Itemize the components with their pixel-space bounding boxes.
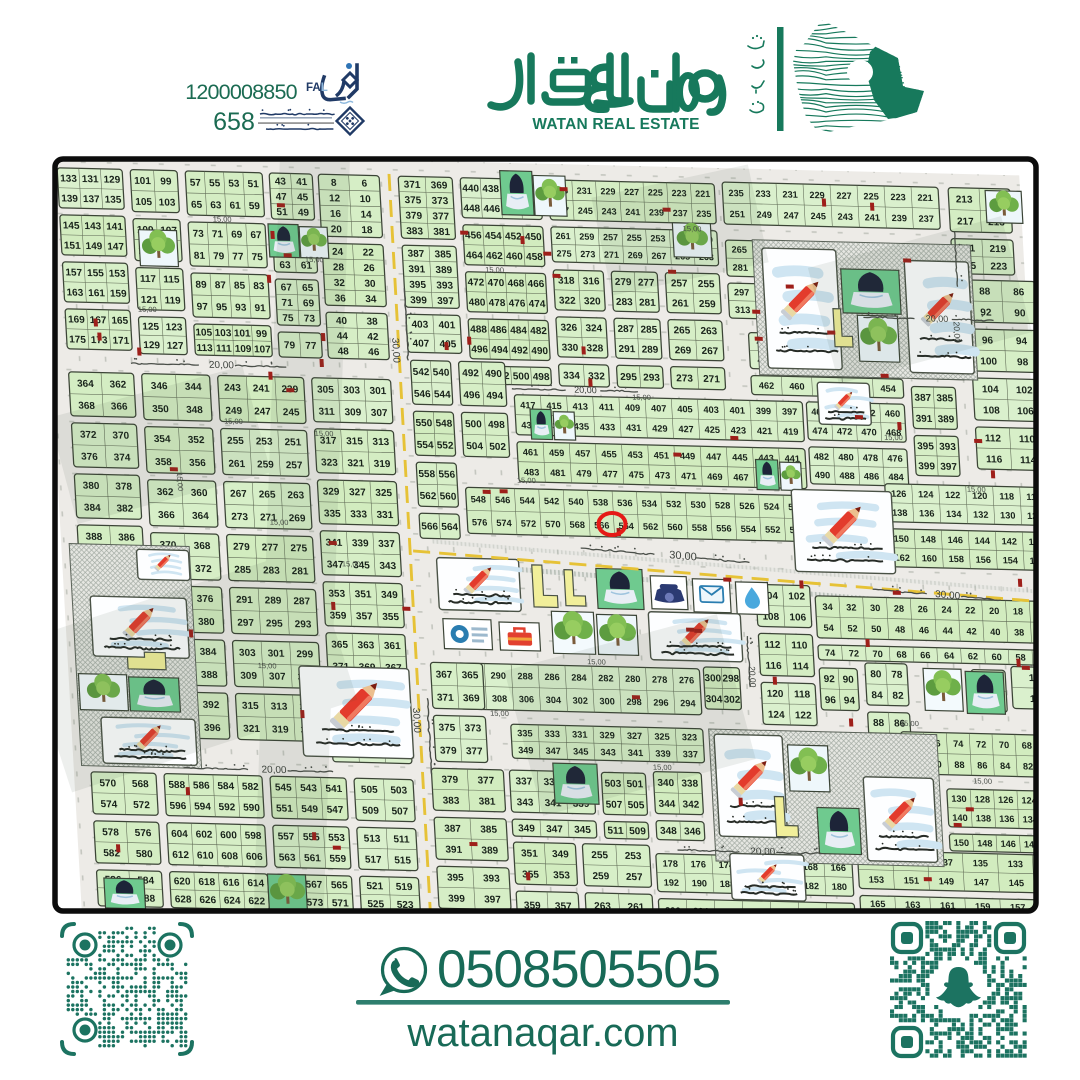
svg-text:91: 91 (254, 303, 266, 314)
svg-text:114: 114 (792, 661, 809, 672)
svg-text:381: 381 (433, 227, 451, 238)
svg-text:421: 421 (757, 426, 773, 436)
svg-text:337: 337 (515, 776, 533, 787)
svg-text:338: 338 (681, 778, 699, 789)
svg-text:15,00: 15,00 (213, 215, 232, 224)
svg-text:163: 163 (66, 287, 84, 298)
svg-text:50: 50 (871, 624, 882, 634)
svg-text:158: 158 (948, 554, 964, 564)
svg-text:139: 139 (61, 193, 79, 204)
svg-text:101: 101 (234, 328, 252, 339)
svg-text:368: 368 (193, 541, 211, 552)
svg-text:231: 231 (782, 189, 798, 199)
svg-text:55: 55 (209, 178, 221, 189)
svg-text:77: 77 (232, 252, 244, 263)
svg-text:548: 548 (470, 494, 486, 504)
svg-text:568: 568 (132, 779, 150, 790)
svg-text:120: 120 (767, 689, 785, 700)
svg-text:324: 324 (585, 323, 603, 334)
svg-text:308: 308 (492, 694, 508, 704)
svg-text:610: 610 (197, 850, 215, 861)
svg-text:30,00: 30,00 (669, 549, 697, 563)
svg-text:372: 372 (195, 564, 213, 575)
svg-text:38: 38 (1014, 627, 1025, 637)
svg-text:88: 88 (873, 718, 885, 729)
svg-text:247: 247 (254, 406, 272, 417)
svg-text:476: 476 (887, 453, 903, 463)
svg-text:481: 481 (550, 468, 566, 478)
svg-text:307: 307 (371, 408, 389, 419)
svg-text:119: 119 (164, 295, 181, 306)
svg-text:136: 136 (999, 814, 1015, 824)
svg-text:544: 544 (519, 495, 536, 505)
svg-text:349: 349 (518, 823, 536, 834)
svg-text:500: 500 (513, 371, 531, 382)
svg-text:132: 132 (973, 510, 989, 520)
svg-text:620: 620 (174, 876, 192, 887)
svg-text:480: 480 (838, 452, 854, 462)
svg-text:313: 313 (735, 305, 751, 315)
svg-text:101: 101 (134, 176, 152, 187)
svg-text:552: 552 (437, 440, 455, 451)
svg-text:30: 30 (870, 603, 881, 613)
svg-text:574: 574 (100, 799, 118, 810)
svg-text:375: 375 (404, 195, 422, 206)
svg-text:536: 536 (617, 498, 633, 508)
svg-text:79: 79 (213, 251, 225, 262)
svg-text:471: 471 (681, 471, 697, 481)
svg-text:559: 559 (329, 854, 347, 865)
svg-text:169: 169 (68, 314, 86, 325)
svg-text:245: 245 (810, 211, 826, 221)
svg-text:397: 397 (940, 462, 958, 473)
svg-text:477: 477 (602, 469, 618, 479)
svg-text:84: 84 (1000, 761, 1012, 771)
svg-text:460: 460 (885, 409, 901, 419)
svg-text:572: 572 (133, 800, 151, 811)
svg-text:578: 578 (102, 827, 120, 838)
svg-text:150: 150 (953, 838, 969, 848)
svg-text:484: 484 (888, 472, 905, 482)
svg-text:552: 552 (765, 524, 781, 534)
svg-text:389: 389 (435, 265, 453, 276)
svg-text:425: 425 (704, 425, 720, 435)
svg-text:290: 290 (490, 671, 506, 681)
svg-text:145: 145 (1008, 878, 1024, 888)
svg-text:534: 534 (641, 498, 658, 508)
svg-text:68: 68 (896, 650, 907, 660)
svg-text:99: 99 (256, 329, 268, 340)
svg-text:241: 241 (253, 383, 271, 394)
svg-text:576: 576 (134, 828, 152, 839)
svg-text:156: 156 (975, 555, 991, 565)
svg-text:386: 386 (118, 532, 136, 543)
svg-text:486: 486 (490, 325, 508, 336)
svg-text:365: 365 (461, 670, 479, 681)
svg-text:279: 279 (233, 542, 251, 553)
svg-text:438: 438 (482, 184, 500, 195)
svg-text:46: 46 (919, 625, 930, 635)
svg-text:431: 431 (626, 423, 642, 433)
svg-text:554: 554 (740, 524, 757, 534)
svg-text:479: 479 (576, 468, 592, 478)
svg-text:526: 526 (739, 501, 755, 511)
svg-text:255: 255 (591, 850, 609, 861)
svg-text:397: 397 (437, 296, 455, 307)
svg-text:131: 131 (82, 174, 100, 185)
svg-text:419: 419 (783, 427, 799, 437)
svg-text:103: 103 (214, 328, 232, 339)
svg-text:64: 64 (944, 651, 956, 661)
svg-text:500: 500 (465, 419, 483, 430)
svg-text:472: 472 (467, 277, 485, 288)
svg-text:80: 80 (870, 669, 882, 680)
svg-text:295: 295 (620, 372, 638, 383)
svg-text:457: 457 (575, 448, 591, 458)
svg-text:586: 586 (193, 780, 211, 791)
svg-text:470: 470 (487, 278, 505, 289)
svg-text:375: 375 (438, 722, 456, 733)
svg-text:267: 267 (701, 346, 719, 357)
svg-text:385: 385 (480, 824, 498, 835)
svg-text:176: 176 (690, 859, 706, 869)
svg-text:265: 265 (673, 325, 691, 336)
svg-text:554: 554 (417, 440, 435, 451)
svg-text:320: 320 (584, 296, 602, 307)
svg-text:131: 131 (1042, 860, 1058, 870)
svg-text:15,00: 15,00 (138, 305, 157, 314)
svg-text:61: 61 (229, 201, 241, 212)
svg-text:141: 141 (106, 222, 124, 233)
svg-text:190: 190 (691, 878, 707, 888)
svg-text:480: 480 (468, 297, 486, 308)
svg-text:147: 147 (107, 242, 125, 253)
svg-text:371: 371 (437, 692, 455, 703)
svg-text:608: 608 (221, 851, 239, 862)
svg-text:454: 454 (485, 231, 503, 242)
svg-text:285: 285 (640, 324, 658, 335)
svg-text:547: 547 (326, 805, 344, 816)
svg-text:142: 142 (1001, 536, 1017, 546)
svg-text:127: 127 (167, 341, 185, 352)
svg-text:462: 462 (486, 251, 504, 262)
svg-text:440: 440 (462, 183, 480, 194)
svg-text:237: 237 (918, 214, 934, 224)
svg-text:582: 582 (242, 782, 260, 793)
svg-text:180: 180 (831, 882, 847, 892)
svg-text:600: 600 (220, 830, 238, 841)
svg-text:57: 57 (190, 178, 202, 189)
svg-text:309: 309 (344, 407, 362, 418)
svg-text:56: 56 (1039, 653, 1050, 663)
svg-text:562: 562 (419, 491, 437, 502)
svg-text:343: 343 (379, 561, 397, 572)
svg-text:70: 70 (999, 740, 1010, 750)
svg-text:546: 546 (414, 389, 432, 400)
svg-text:34: 34 (365, 294, 377, 305)
svg-text:505: 505 (361, 784, 379, 795)
svg-text:106: 106 (1017, 406, 1035, 417)
svg-text:122: 122 (795, 710, 813, 721)
svg-text:473: 473 (655, 470, 671, 480)
svg-text:146: 146 (1000, 839, 1016, 849)
svg-text:393: 393 (939, 442, 957, 453)
svg-text:225: 225 (863, 191, 879, 201)
svg-text:72: 72 (849, 648, 860, 658)
svg-text:383: 383 (406, 226, 424, 237)
svg-text:445: 445 (732, 452, 748, 462)
svg-text:351: 351 (354, 589, 372, 600)
svg-text:72: 72 (976, 739, 987, 749)
svg-text:496: 496 (463, 390, 481, 401)
svg-text:149: 149 (938, 876, 954, 886)
svg-text:448: 448 (463, 203, 481, 214)
svg-text:371: 371 (403, 180, 421, 191)
svg-text:462: 462 (759, 381, 775, 391)
svg-text:80: 80 (1046, 762, 1057, 772)
svg-text:98: 98 (1017, 357, 1029, 368)
svg-text:287: 287 (617, 324, 635, 335)
svg-text:353: 353 (553, 870, 571, 881)
svg-text:74: 74 (825, 648, 837, 658)
svg-text:38: 38 (366, 316, 378, 327)
svg-text:407: 407 (651, 403, 667, 413)
svg-text:492: 492 (511, 345, 529, 356)
svg-text:387: 387 (444, 823, 462, 834)
svg-text:469: 469 (707, 472, 723, 482)
svg-text:75: 75 (251, 252, 263, 263)
svg-text:289: 289 (641, 344, 659, 355)
svg-text:558: 558 (692, 523, 708, 533)
svg-text:395: 395 (409, 280, 427, 291)
svg-text:472: 472 (837, 426, 853, 436)
svg-text:502: 502 (489, 442, 507, 453)
svg-text:129: 129 (143, 340, 161, 351)
svg-text:151: 151 (64, 240, 82, 251)
svg-text:171: 171 (112, 336, 130, 347)
svg-text:112: 112 (764, 640, 781, 651)
svg-text:20,00: 20,00 (750, 846, 776, 858)
svg-text:594: 594 (194, 801, 212, 812)
svg-text:293: 293 (643, 372, 661, 383)
svg-text:273: 273 (580, 249, 596, 259)
svg-text:482: 482 (530, 326, 548, 337)
svg-text:553: 553 (328, 833, 346, 844)
svg-text:321: 321 (347, 458, 365, 469)
svg-text:133: 133 (60, 173, 78, 184)
svg-text:53: 53 (228, 179, 240, 190)
svg-text:330: 330 (561, 343, 579, 354)
svg-text:612: 612 (172, 850, 190, 861)
svg-text:221: 221 (917, 193, 933, 203)
svg-text:135: 135 (104, 195, 122, 206)
svg-text:452: 452 (505, 231, 523, 242)
svg-text:291: 291 (618, 344, 636, 355)
svg-text:528: 528 (715, 500, 731, 510)
svg-text:143: 143 (84, 221, 102, 232)
svg-text:385: 385 (434, 249, 452, 260)
svg-text:70: 70 (872, 649, 883, 659)
svg-text:334: 334 (563, 371, 581, 382)
svg-text:474: 474 (528, 299, 546, 310)
svg-text:399: 399 (410, 295, 428, 306)
svg-text:178: 178 (662, 858, 678, 868)
svg-text:391: 391 (408, 264, 426, 275)
svg-text:484: 484 (510, 325, 528, 336)
svg-text:505: 505 (627, 800, 645, 811)
svg-text:313: 313 (372, 437, 390, 448)
svg-text:389: 389 (937, 414, 955, 425)
svg-text:144: 144 (974, 536, 991, 546)
svg-text:494: 494 (491, 345, 509, 356)
svg-text:68: 68 (1021, 740, 1032, 750)
svg-text:243: 243 (837, 212, 853, 222)
svg-text:145: 145 (63, 220, 81, 231)
svg-text:51: 51 (247, 179, 259, 190)
svg-text:273: 273 (676, 373, 694, 384)
svg-text:331: 331 (376, 510, 394, 521)
svg-text:474: 474 (812, 426, 829, 436)
svg-text:466: 466 (527, 279, 545, 290)
svg-text:257: 257 (626, 872, 644, 883)
svg-text:69: 69 (231, 230, 243, 241)
svg-text:564: 564 (441, 522, 459, 533)
svg-text:393: 393 (436, 280, 454, 291)
svg-text:138: 138 (975, 813, 991, 823)
svg-text:446: 446 (483, 204, 501, 215)
svg-text:509: 509 (362, 805, 380, 816)
svg-text:319: 319 (373, 459, 391, 470)
svg-text:364: 364 (192, 511, 210, 522)
svg-text:387: 387 (407, 249, 425, 260)
svg-text:301: 301 (369, 386, 387, 397)
svg-text:113: 113 (196, 343, 213, 354)
svg-text:15,00: 15,00 (967, 485, 986, 494)
svg-text:513: 513 (363, 833, 381, 844)
svg-text:328: 328 (586, 343, 604, 354)
svg-text:450: 450 (525, 232, 543, 243)
svg-text:167: 167 (89, 315, 107, 326)
svg-text:490: 490 (485, 369, 503, 380)
svg-text:475: 475 (628, 470, 644, 480)
svg-text:626: 626 (199, 895, 217, 906)
svg-text:588: 588 (168, 780, 186, 791)
svg-text:118: 118 (999, 491, 1014, 501)
svg-text:26: 26 (363, 263, 375, 274)
svg-text:26: 26 (917, 604, 928, 614)
svg-text:297: 297 (734, 287, 750, 297)
svg-text:540: 540 (432, 367, 450, 378)
svg-text:30: 30 (364, 279, 376, 290)
svg-text:401: 401 (729, 405, 745, 415)
svg-text:231: 231 (576, 186, 592, 196)
svg-text:255: 255 (698, 279, 716, 290)
svg-text:405: 405 (677, 404, 693, 414)
svg-text:73: 73 (192, 229, 204, 240)
svg-text:524: 524 (764, 501, 781, 511)
svg-text:146: 146 (947, 535, 963, 545)
svg-text:393: 393 (483, 873, 501, 884)
svg-text:385: 385 (936, 393, 954, 404)
svg-text:15,00: 15,00 (632, 393, 651, 402)
svg-text:159: 159 (110, 289, 128, 300)
svg-text:42: 42 (966, 626, 977, 636)
svg-text:15,00: 15,00 (485, 265, 504, 274)
svg-text:81: 81 (194, 251, 206, 262)
svg-text:78: 78 (891, 670, 903, 681)
svg-text:423: 423 (730, 425, 746, 435)
svg-text:15,00: 15,00 (517, 476, 536, 485)
svg-text:517: 517 (365, 854, 383, 865)
svg-text:117: 117 (140, 274, 157, 285)
svg-text:84: 84 (871, 690, 883, 701)
svg-text:377: 377 (477, 775, 495, 786)
svg-text:165: 165 (111, 316, 129, 327)
svg-text:571: 571 (332, 898, 350, 909)
svg-text:130: 130 (951, 794, 967, 804)
svg-text:112: 112 (985, 433, 1002, 444)
svg-text:454: 454 (880, 383, 897, 393)
svg-text:355: 355 (522, 869, 540, 880)
svg-text:383: 383 (442, 795, 460, 806)
svg-text:157: 157 (65, 267, 83, 278)
svg-text:325: 325 (375, 488, 393, 499)
svg-text:377: 377 (432, 211, 450, 222)
svg-text:464: 464 (466, 250, 484, 261)
svg-text:316: 316 (583, 276, 601, 287)
svg-text:337: 337 (378, 539, 396, 550)
svg-text:28: 28 (894, 604, 905, 614)
svg-text:281: 281 (639, 297, 657, 308)
svg-text:110: 110 (791, 640, 808, 651)
svg-text:345: 345 (574, 825, 592, 836)
svg-text:498: 498 (533, 372, 551, 383)
svg-text:116: 116 (986, 454, 1003, 465)
svg-text:44: 44 (942, 626, 954, 636)
svg-text:349: 349 (552, 849, 570, 860)
svg-text:565: 565 (331, 880, 349, 891)
svg-text:460: 460 (789, 381, 805, 391)
svg-text:105: 105 (195, 327, 213, 338)
svg-text:93: 93 (235, 303, 247, 314)
svg-text:142: 142 (1047, 840, 1063, 850)
svg-text:592: 592 (218, 802, 236, 813)
svg-text:267: 267 (230, 489, 248, 500)
svg-text:403: 403 (411, 319, 429, 330)
svg-text:496: 496 (471, 344, 489, 355)
svg-text:429: 429 (652, 423, 668, 433)
svg-text:342: 342 (682, 799, 700, 810)
svg-text:544: 544 (434, 389, 452, 400)
svg-text:346: 346 (684, 826, 702, 837)
svg-text:616: 616 (223, 877, 241, 888)
svg-text:367: 367 (435, 669, 453, 680)
svg-text:0508505505: 0508505505 (437, 940, 720, 999)
svg-text:275: 275 (556, 248, 572, 258)
svg-text:227: 227 (836, 191, 852, 201)
svg-text:476: 476 (508, 298, 526, 309)
svg-text:20,00: 20,00 (574, 385, 597, 396)
svg-text:530: 530 (690, 500, 706, 510)
svg-text:48: 48 (895, 625, 906, 635)
svg-text:357: 357 (356, 611, 374, 622)
svg-text:223: 223 (890, 192, 906, 202)
svg-text:584: 584 (217, 781, 235, 792)
svg-text:95: 95 (216, 302, 228, 313)
svg-text:362: 362 (109, 379, 127, 390)
svg-text:451: 451 (653, 450, 669, 460)
svg-text:490: 490 (531, 346, 549, 357)
